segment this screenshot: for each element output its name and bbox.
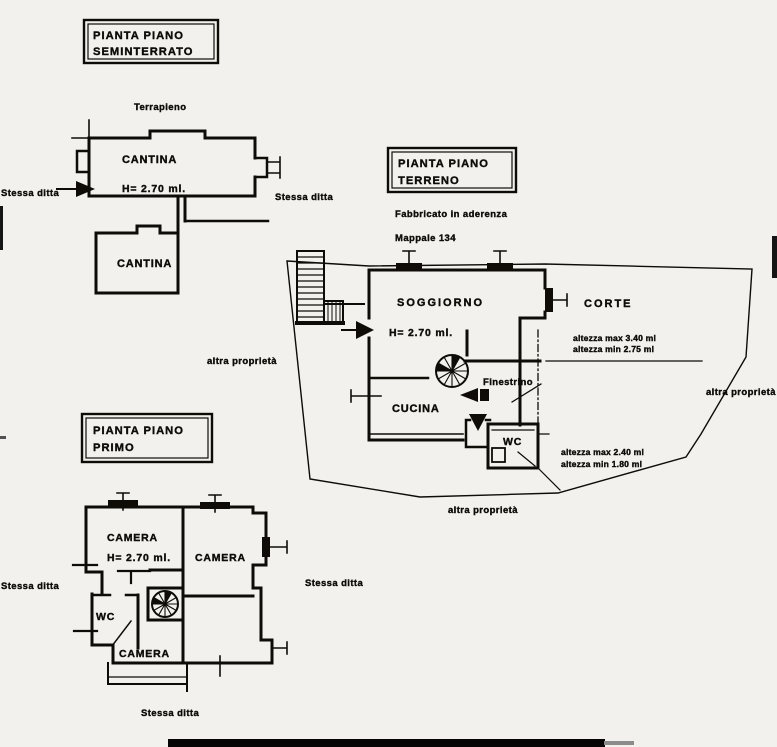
door-niche [77,151,89,172]
note-fabbricato-aderenza: Fabbricato in aderenza [395,209,508,220]
room-label-cantina-lower: CANTINA [117,258,172,270]
spiral-stair-primo [152,591,178,617]
plan-seminterrato: PIANTA PIANO SEMINTERRATO Terrapieno CAN… [1,20,333,293]
label-finestrino: Finestrino [483,377,533,388]
title-box-terreno: PIANTA PIANO TERRENO [388,148,516,192]
window-right [255,158,267,177]
spiral-stair-terreno [436,355,468,387]
scan-artifact [772,236,777,278]
door-arrow-down-icon [469,414,487,431]
note-altra-proprieta-bottom: altra proprietà [448,505,518,516]
title-box-seminterrato: PIANTA PIANO SEMINTERRATO [84,20,218,63]
room-label-camera-3: CAMERA [119,648,170,660]
scan-artifacts [0,206,777,747]
title-terreno-line2: TERRENO [398,175,460,187]
room-label-camera-2: CAMERA [195,552,246,564]
scan-artifact [604,741,634,745]
height-label-seminterrato: H= 2.70 ml. [122,183,186,195]
plan-primo: PIANTA PIANO PRIMO [1,414,363,719]
altezza-corte-min: altezza min 2.75 ml [573,344,654,354]
scan-artifact [0,436,6,439]
altezza-wc-max: altezza max 2.40 ml [561,447,644,457]
room-label-cantina-upper: CANTINA [122,154,177,166]
room-label-wc-primo: WC [96,611,115,623]
room-label-soggiorno: SOGGIORNO [397,297,484,309]
room-label-cucina: CUCINA [392,403,440,415]
title-primo-line2: PRIMO [93,442,135,454]
title-seminterrato-line1: PIANTA PIANO [93,30,184,42]
door-arrow-icon [356,321,374,339]
note-stessa-ditta-left-primo: Stessa ditta [1,581,59,592]
scan-artifact [0,206,3,250]
room-label-wc-terreno: WC [503,436,522,448]
scan-artifact-bottom-bar [168,739,605,747]
plan-terreno: PIANTA PIANO TERRENO Fabbricato in adere… [207,148,776,516]
building-walls-terreno [342,251,702,490]
note-terrapieno: Terrapieno [134,102,186,113]
note-mappale: Mappale 134 [395,233,456,244]
title-seminterrato-line2: SEMINTERRATO [93,46,193,58]
building-walls-primo [73,493,287,691]
title-box-primo: PIANTA PIANO PRIMO [82,414,212,462]
note-stessa-ditta-left-sem: Stessa ditta [1,188,59,199]
altezza-corte-max: altezza max 3.40 ml [573,333,656,343]
note-stessa-ditta-right-sem: Stessa ditta [275,192,333,203]
window-right-soggiorno [545,288,553,312]
title-primo-line1: PIANTA PIANO [93,425,184,437]
height-label-primo: H= 2.70 ml. [107,552,171,564]
room-label-camera-1: CAMERA [107,532,158,544]
room-label-corte: CORTE [584,298,633,310]
altezza-wc-min: altezza min 1.80 ml [561,459,642,469]
title-terreno-line1: PIANTA PIANO [398,158,489,170]
note-stessa-ditta-bottom-primo: Stessa ditta [141,708,199,719]
note-altra-proprieta-left: altra proprietà [207,356,277,367]
scanned-floor-plan-page: PIANTA PIANO SEMINTERRATO Terrapieno CAN… [0,0,777,747]
height-label-terreno: H= 2.70 ml. [389,327,453,339]
door-arrow-icon [460,388,478,402]
floor-plan-drawing: PIANTA PIANO SEMINTERRATO Terrapieno CAN… [0,0,777,747]
note-altra-proprieta-right: altra proprietà [706,387,776,398]
note-stessa-ditta-right-primo: Stessa ditta [305,578,363,589]
